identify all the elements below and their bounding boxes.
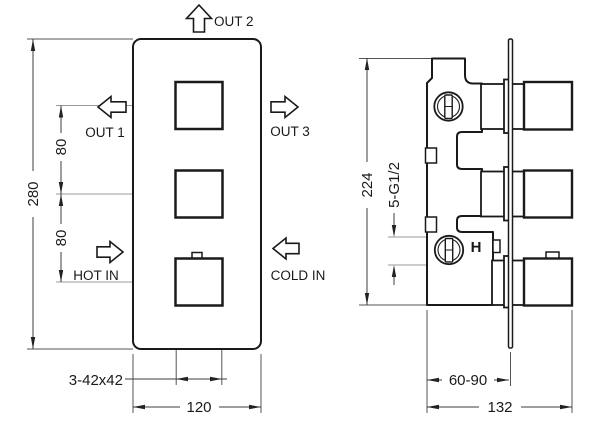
hot-in-label: HOT IN: [73, 268, 119, 283]
dim-overall-width: 120: [186, 399, 211, 416]
arrow-120-right: [249, 405, 261, 409]
dim-spacing-upper: 80: [53, 139, 70, 156]
dim-overall-depth: 132: [487, 399, 512, 416]
wall-plate: [509, 39, 513, 348]
stem-top: [481, 84, 524, 129]
handle-top: [176, 82, 223, 129]
front-view: OUT 2 OUT 1 OUT 3 HOT IN COLD IN 280 80 …: [25, 5, 325, 416]
side-handle-middle: [524, 171, 572, 218]
cold-in-arrow-icon: [273, 238, 299, 259]
handle-middle: [176, 171, 223, 218]
hot-marking: H: [471, 239, 482, 256]
arrow-80b-bottom: [59, 270, 63, 282]
arrow-6090-right: [497, 378, 509, 382]
arrow-42-left: [176, 377, 188, 381]
dim-side-height: 224: [359, 172, 376, 197]
arrow-224-top: [365, 58, 369, 70]
arrow-224-bottom: [365, 293, 369, 305]
dim-install-depth: 60-90: [449, 372, 487, 389]
valve-technical-drawing: OUT 2 OUT 1 OUT 3 HOT IN COLD IN 280 80 …: [0, 0, 600, 442]
out3-label: OUT 3: [270, 124, 310, 139]
out2-arrow-icon: [187, 5, 212, 32]
arrow-g12-top: [392, 225, 396, 237]
side-view: 224 5-G1/2 60-90 132 H: [359, 39, 572, 416]
handle-bottom: [176, 259, 223, 306]
arrow-132-right: [560, 405, 572, 409]
out2-label: OUT 2: [214, 14, 254, 29]
arrow-120-left: [133, 405, 145, 409]
side-handle-bottom: [524, 259, 572, 306]
arrow-g12-bottom: [392, 265, 396, 277]
arrow-80b-top: [59, 194, 63, 206]
dim-handle-size: 3-42x42: [69, 372, 123, 389]
arrow-80a-bottom: [59, 182, 63, 194]
arrow-6090-left: [427, 378, 439, 382]
out1-label: OUT 1: [85, 125, 125, 140]
hot-side-tab: [493, 240, 500, 253]
dim-connections: 5-G1/2: [386, 162, 403, 208]
arrow-80a-top: [59, 106, 63, 118]
side-handle-top: [524, 82, 572, 130]
cold-in-label: COLD IN: [271, 268, 326, 283]
out1-arrow-icon: [98, 97, 126, 118]
arrow-280-top: [31, 39, 35, 51]
arrow-280-bottom: [31, 337, 35, 349]
dim-overall-height: 280: [25, 181, 42, 206]
arrow-42-right: [210, 377, 222, 381]
technical-drawing-page: OUT 2 OUT 1 OUT 3 HOT IN COLD IN 280 80 …: [0, 0, 600, 442]
out3-arrow-icon: [271, 97, 298, 118]
arrow-132-left: [427, 405, 439, 409]
front-handles: [176, 82, 223, 306]
dim-spacing-lower: 80: [53, 230, 70, 247]
stem-middle: [481, 172, 524, 217]
lug-upper: [426, 148, 437, 163]
lug-lower: [426, 217, 437, 232]
hot-in-arrow-icon: [97, 242, 123, 263]
side-handles: [524, 82, 572, 306]
